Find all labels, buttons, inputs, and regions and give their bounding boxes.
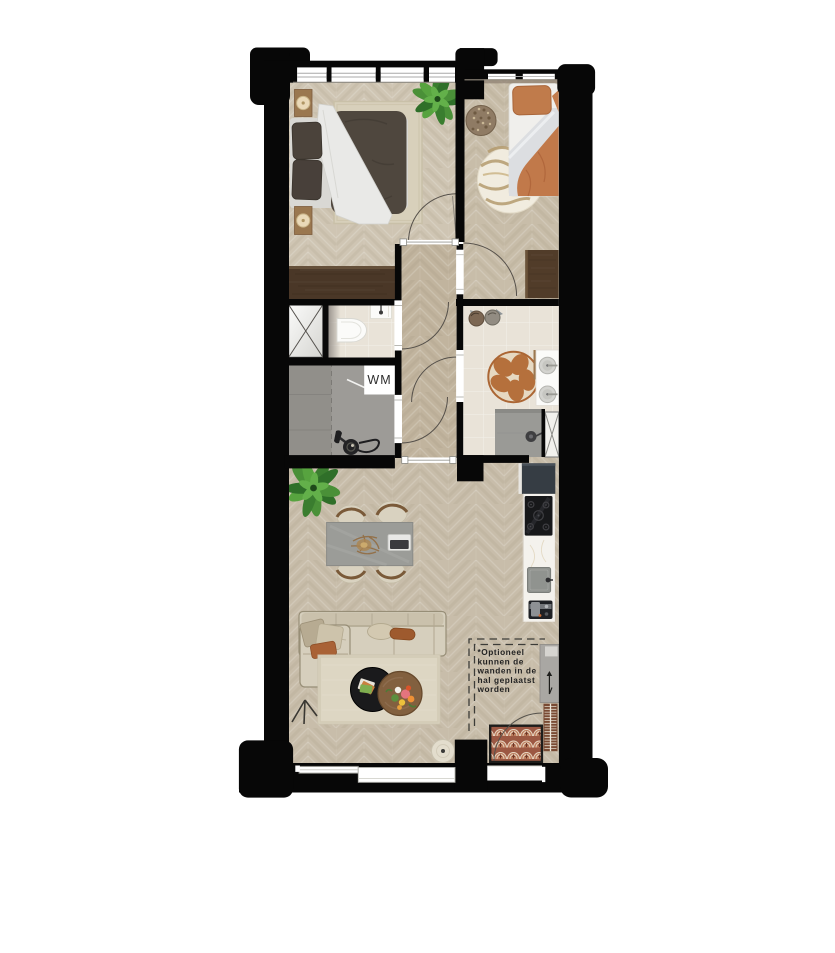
svg-text:WM: WM [367, 373, 391, 387]
svg-text:worden: worden [477, 684, 511, 694]
